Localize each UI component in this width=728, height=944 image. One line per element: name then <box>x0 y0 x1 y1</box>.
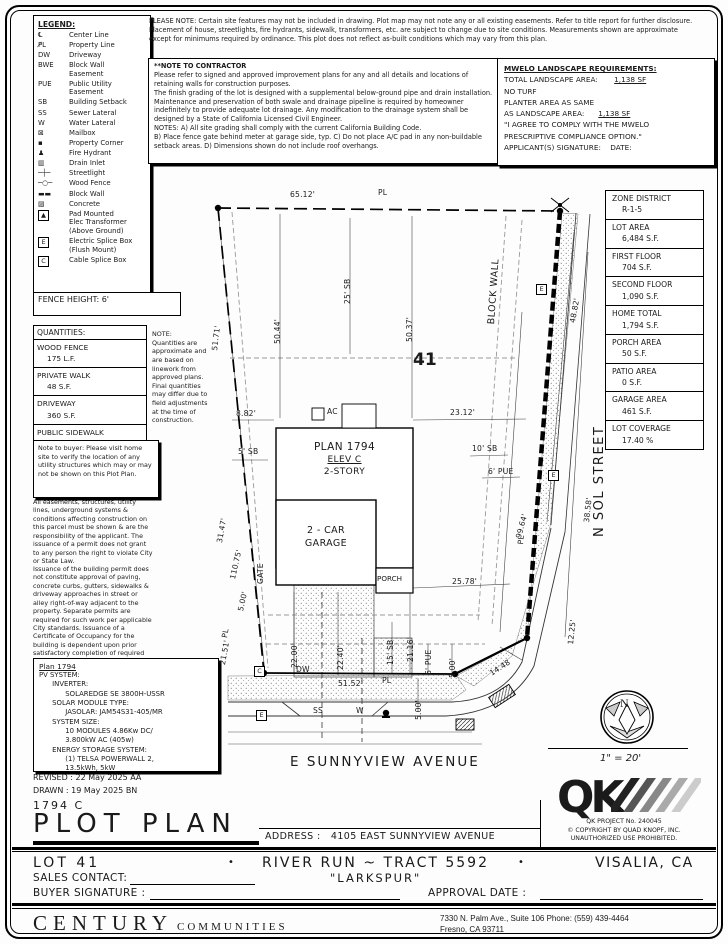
compass-n: N <box>620 696 629 711</box>
north-compass: N <box>598 688 656 746</box>
dim-label: 5.00' <box>414 700 423 720</box>
dim-label: 5.00' <box>448 658 457 678</box>
approval-date-line <box>540 899 703 900</box>
please-note-text: PLEASE NOTE: Certain site features may n… <box>149 17 701 44</box>
table-row: LOT COVERAGE17.40 % <box>606 421 703 449</box>
house-plan-label: PLAN 1794 ELEV C 2-STORY <box>276 440 413 478</box>
gate-label: GATE <box>256 563 265 584</box>
property-line-symbol: PL <box>378 188 387 197</box>
dim-label: 50.44' <box>273 319 282 344</box>
dim-label: 50.37' <box>405 317 414 342</box>
qk-copyright: © COPYRIGHT BY QUAD KNOPF, INC. <box>543 827 705 836</box>
dim-label: 23.12' <box>450 408 475 417</box>
bullet: • <box>518 857 524 868</box>
contractor-note-body: Please refer to signed and approved impr… <box>154 71 496 151</box>
quantities-title: QUANTITIES: <box>34 326 146 339</box>
communities-wordmark: COMMUNITIES <box>177 921 288 933</box>
ac-unit-label: AC <box>327 407 338 416</box>
plot-plan-sheet: LEGEND: ℄Center Line P̸LProperty Line DW… <box>0 0 728 944</box>
table-row: LOT AREA6,484 S.F. <box>606 220 703 249</box>
qk-unauthorized: UNAUTHORIZED USE PROHIBITED. <box>543 835 705 844</box>
transformer-icon: ▲ <box>38 210 49 221</box>
legend-item: DWDriveway <box>38 51 146 60</box>
driveway-icon: DW <box>38 51 64 60</box>
sewer-lateral-label: SS <box>313 706 323 715</box>
mwelo-no-turf: NO TURF <box>504 86 708 97</box>
block-wall-icon: ▬▬ <box>38 190 64 199</box>
approval-date-label: APPROVAL DATE : <box>428 887 526 899</box>
footer-address: 7330 N. Palm Ave., Suite 106 Phone: (559… <box>440 913 702 924</box>
lot-number: 41 <box>413 350 437 370</box>
electric-splice-box-symbol: E <box>536 284 547 295</box>
mwelo-agree1: "I AGREE TO COMPLY WITH THE MWELO <box>504 119 708 130</box>
legend-item: ♟Fire Hydrant <box>38 149 146 158</box>
legend-item: ▲Pad Mounted Elec Transformer (Above Gro… <box>38 210 146 236</box>
applicant-signature-label: APPLICANT(S) SIGNATURE: <box>504 143 601 152</box>
legend-item: CCable Splice Box <box>38 256 146 267</box>
table-row: FIRST FLOOR704 S.F. <box>606 249 703 278</box>
mailbox-icon: ⊠ <box>38 129 64 138</box>
dim-label: 21.16' <box>406 637 415 662</box>
water-lateral-label: W <box>356 706 364 715</box>
table-row: ZONE DISTRICTR-1-5 <box>606 191 703 220</box>
revision-drawn: DRAWN : 19 May 2025 BN <box>33 785 141 798</box>
center-line-icon: ℄ <box>38 31 64 40</box>
qk-separator-line <box>540 800 541 847</box>
legend-item: ⊠Mailbox <box>38 129 146 138</box>
century-logo: CENTURY COMMUNITIES <box>33 911 288 936</box>
legend-item: ▥Drain Inlet <box>38 159 146 168</box>
table-row: HOME TOTAL1,794 S.F. <box>606 306 703 335</box>
legend-item: ℄Center Line <box>38 31 146 40</box>
dim-label: 25.78' <box>452 577 477 586</box>
dim-label: 22.40' <box>336 645 345 670</box>
sewer-lateral-icon: SS <box>38 109 64 118</box>
dim-label: 65.12' <box>290 190 315 199</box>
dim-label: 25' SB <box>343 279 352 304</box>
legend-item: SSSewer Lateral <box>38 109 146 118</box>
mwelo-planter-line1: PLANTER AREA AS SAME <box>504 97 708 108</box>
scale-bar <box>548 748 688 749</box>
easement-note: All easements, structures, utility lines… <box>33 499 154 566</box>
mwelo-total-label: TOTAL LANDSCAPE AREA: <box>504 75 598 84</box>
city-label: VISALIA, CA <box>595 855 694 871</box>
site-data-table: ZONE DISTRICTR-1-5 LOT AREA6,484 S.F. FI… <box>605 190 704 450</box>
contractor-note-title: **NOTE TO CONTRACTOR <box>154 62 496 71</box>
quantity-row: WOOD FENCE175 L.F. <box>34 339 146 367</box>
title-underline <box>33 841 259 845</box>
sheet-title: PLOT PLAN <box>33 809 238 839</box>
address-value: 4105 EAST SUNNYVIEW AVENUE <box>331 831 495 842</box>
lot-label: LOT 41 <box>33 855 100 871</box>
revision-revised: REVISED : 22 May 2025 AA <box>33 772 141 785</box>
century-wordmark: CENTURY <box>33 911 173 935</box>
dim-label: 51.52' <box>338 679 363 688</box>
property-corner-icon: ▪ <box>38 139 64 148</box>
scale-text: 1" = 20' <box>600 753 641 764</box>
buyer-note-box: Note to buyer: Please visit home site to… <box>33 440 159 498</box>
street-name-bottom: E SUNNYVIEW AVENUE <box>290 754 480 770</box>
qk-logo-stripes <box>611 778 701 812</box>
driveway-label: DW <box>296 665 310 674</box>
table-row: PATIO AREA0 S.F. <box>606 364 703 393</box>
permit-note: Issuance of the building permit does not… <box>33 566 154 667</box>
property-line-symbol: PL <box>382 676 391 685</box>
footer-city: Fresno, CA 93711 <box>440 924 702 935</box>
porch-label: PORCH <box>377 574 402 583</box>
sales-contact-line <box>130 884 255 885</box>
legend-item: WWater Lateral <box>38 119 146 128</box>
legend-box: LEGEND: ℄Center Line P̸LProperty Line DW… <box>33 15 151 296</box>
legend-item: SBBuilding Setback <box>38 98 146 107</box>
buyer-signature-label: BUYER SIGNATURE : <box>33 887 145 899</box>
address-cell-top-line <box>259 828 540 829</box>
qk-credits: QK PROJECT No. 240045 © COPYRIGHT BY QUA… <box>543 818 705 844</box>
garage-label: 2 - CAR GARAGE <box>276 524 376 551</box>
property-line-symbol: PL <box>516 535 526 545</box>
legend-item: ─┼─Streetlight <box>38 169 146 178</box>
water-lateral-icon: W <box>38 119 64 128</box>
electric-splice-box-symbol: E <box>256 710 267 721</box>
streetlight-icon: ─┼─ <box>38 169 64 178</box>
buyer-signature-line <box>150 899 400 900</box>
electric-splice-box-symbol: E <box>548 470 559 481</box>
wood-fence-icon: ─○─ <box>38 179 64 188</box>
date-label: DATE: <box>610 143 631 152</box>
setback-label: 10' SB <box>472 444 497 453</box>
mwelo-total-value: 1,138 SF <box>600 75 660 84</box>
concrete-icon: ▨ <box>38 200 64 209</box>
setback-label: 5' SB <box>238 447 258 456</box>
qk-logo-block: QK QK PROJECT No. 240045 © COPYRIGHT BY … <box>543 776 705 844</box>
contractor-note-box: **NOTE TO CONTRACTOR Please refer to sig… <box>148 58 502 164</box>
footer-address-block: 7330 N. Palm Ave., Suite 106 Phone: (559… <box>440 913 702 935</box>
pue-label: 6' PUE <box>488 467 513 476</box>
table-row: PORCH AREA50 S.F. <box>606 335 703 364</box>
plot-drawing: 65.12' PL 25' SB 50.44' 51.71' 50.37' 48… <box>170 192 606 794</box>
table-row: GARAGE AREA461 S.F. <box>606 392 703 421</box>
legend-item: ─○─Wood Fence <box>38 179 146 188</box>
revision-block: REVISED : 22 May 2025 AA DRAWN : 19 May … <box>33 772 141 798</box>
legend-item: ▪Property Corner <box>38 139 146 148</box>
legend-item: ▨Concrete <box>38 200 146 209</box>
table-row: SECOND FLOOR1,090 S.F. <box>606 277 703 306</box>
street-name-right: N SOL STREET <box>592 426 607 537</box>
tract-label: RIVER RUN ~ TRACT 5592 <box>262 855 489 871</box>
mwelo-planter-line2: AS LANDSCAPE AREA: <box>504 109 584 118</box>
property-line-icon: P̸L <box>38 41 64 50</box>
fence-height-box: FENCE HEIGHT: 6' <box>33 292 181 316</box>
drain-inlet-icon: ▥ <box>38 159 64 168</box>
legend-item: BWEBlock Wall Easement <box>38 61 146 78</box>
block-wall-easement-icon: BWE <box>38 61 64 78</box>
quantities-box: QUANTITIES: WOOD FENCE175 L.F. PRIVATE W… <box>33 325 147 453</box>
building-setback-icon: SB <box>38 98 64 107</box>
legend-item: ▬▬Block Wall <box>38 190 146 199</box>
public-utility-easement-icon: PUE <box>38 80 64 97</box>
legend-item: EElectric Splice Box (Flush Mount) <box>38 237 146 254</box>
cable-splice-box-symbol: C <box>254 666 265 677</box>
cable-splice-box-icon: C <box>38 256 49 267</box>
fire-hydrant-icon: ♟ <box>38 149 64 158</box>
quantity-row: DRIVEWAY360 S.F. <box>34 395 146 423</box>
community-name: "LARKSPUR" <box>330 871 421 885</box>
setback-label: 15' SB <box>386 640 395 665</box>
mwelo-box: MWELO LANDSCAPE REQUIREMENTS: TOTAL LAND… <box>497 58 715 166</box>
mwelo-title: MWELO LANDSCAPE REQUIREMENTS: <box>504 63 708 74</box>
address-label: ADDRESS : <box>265 831 321 842</box>
property-line-symbol: PL <box>220 628 230 639</box>
pue-label: 6' PUE <box>424 650 433 675</box>
quantity-row: PRIVATE WALK48 S.F. <box>34 367 146 395</box>
bullet: • <box>228 857 234 868</box>
electric-splice-box-icon: E <box>38 237 49 248</box>
sales-contact-label: SALES CONTACT: <box>33 872 127 884</box>
mwelo-agree2: PRESCRIPTIVE COMPLIANCE OPTION." <box>504 131 708 142</box>
legend-item: P̸LProperty Line <box>38 41 146 50</box>
mwelo-planter-value: 1,138 SF <box>584 109 644 118</box>
address-row: ADDRESS : 4105 EAST SUNNYVIEW AVENUE <box>265 831 495 842</box>
legend-item: PUEPublic Utility Easement <box>38 80 146 97</box>
lot-boundary-svg <box>170 192 606 794</box>
legend-title: LEGEND: <box>38 20 146 29</box>
dim-label: 8.82' <box>236 409 256 418</box>
qk-project-number: QK PROJECT No. 240045 <box>543 818 705 827</box>
